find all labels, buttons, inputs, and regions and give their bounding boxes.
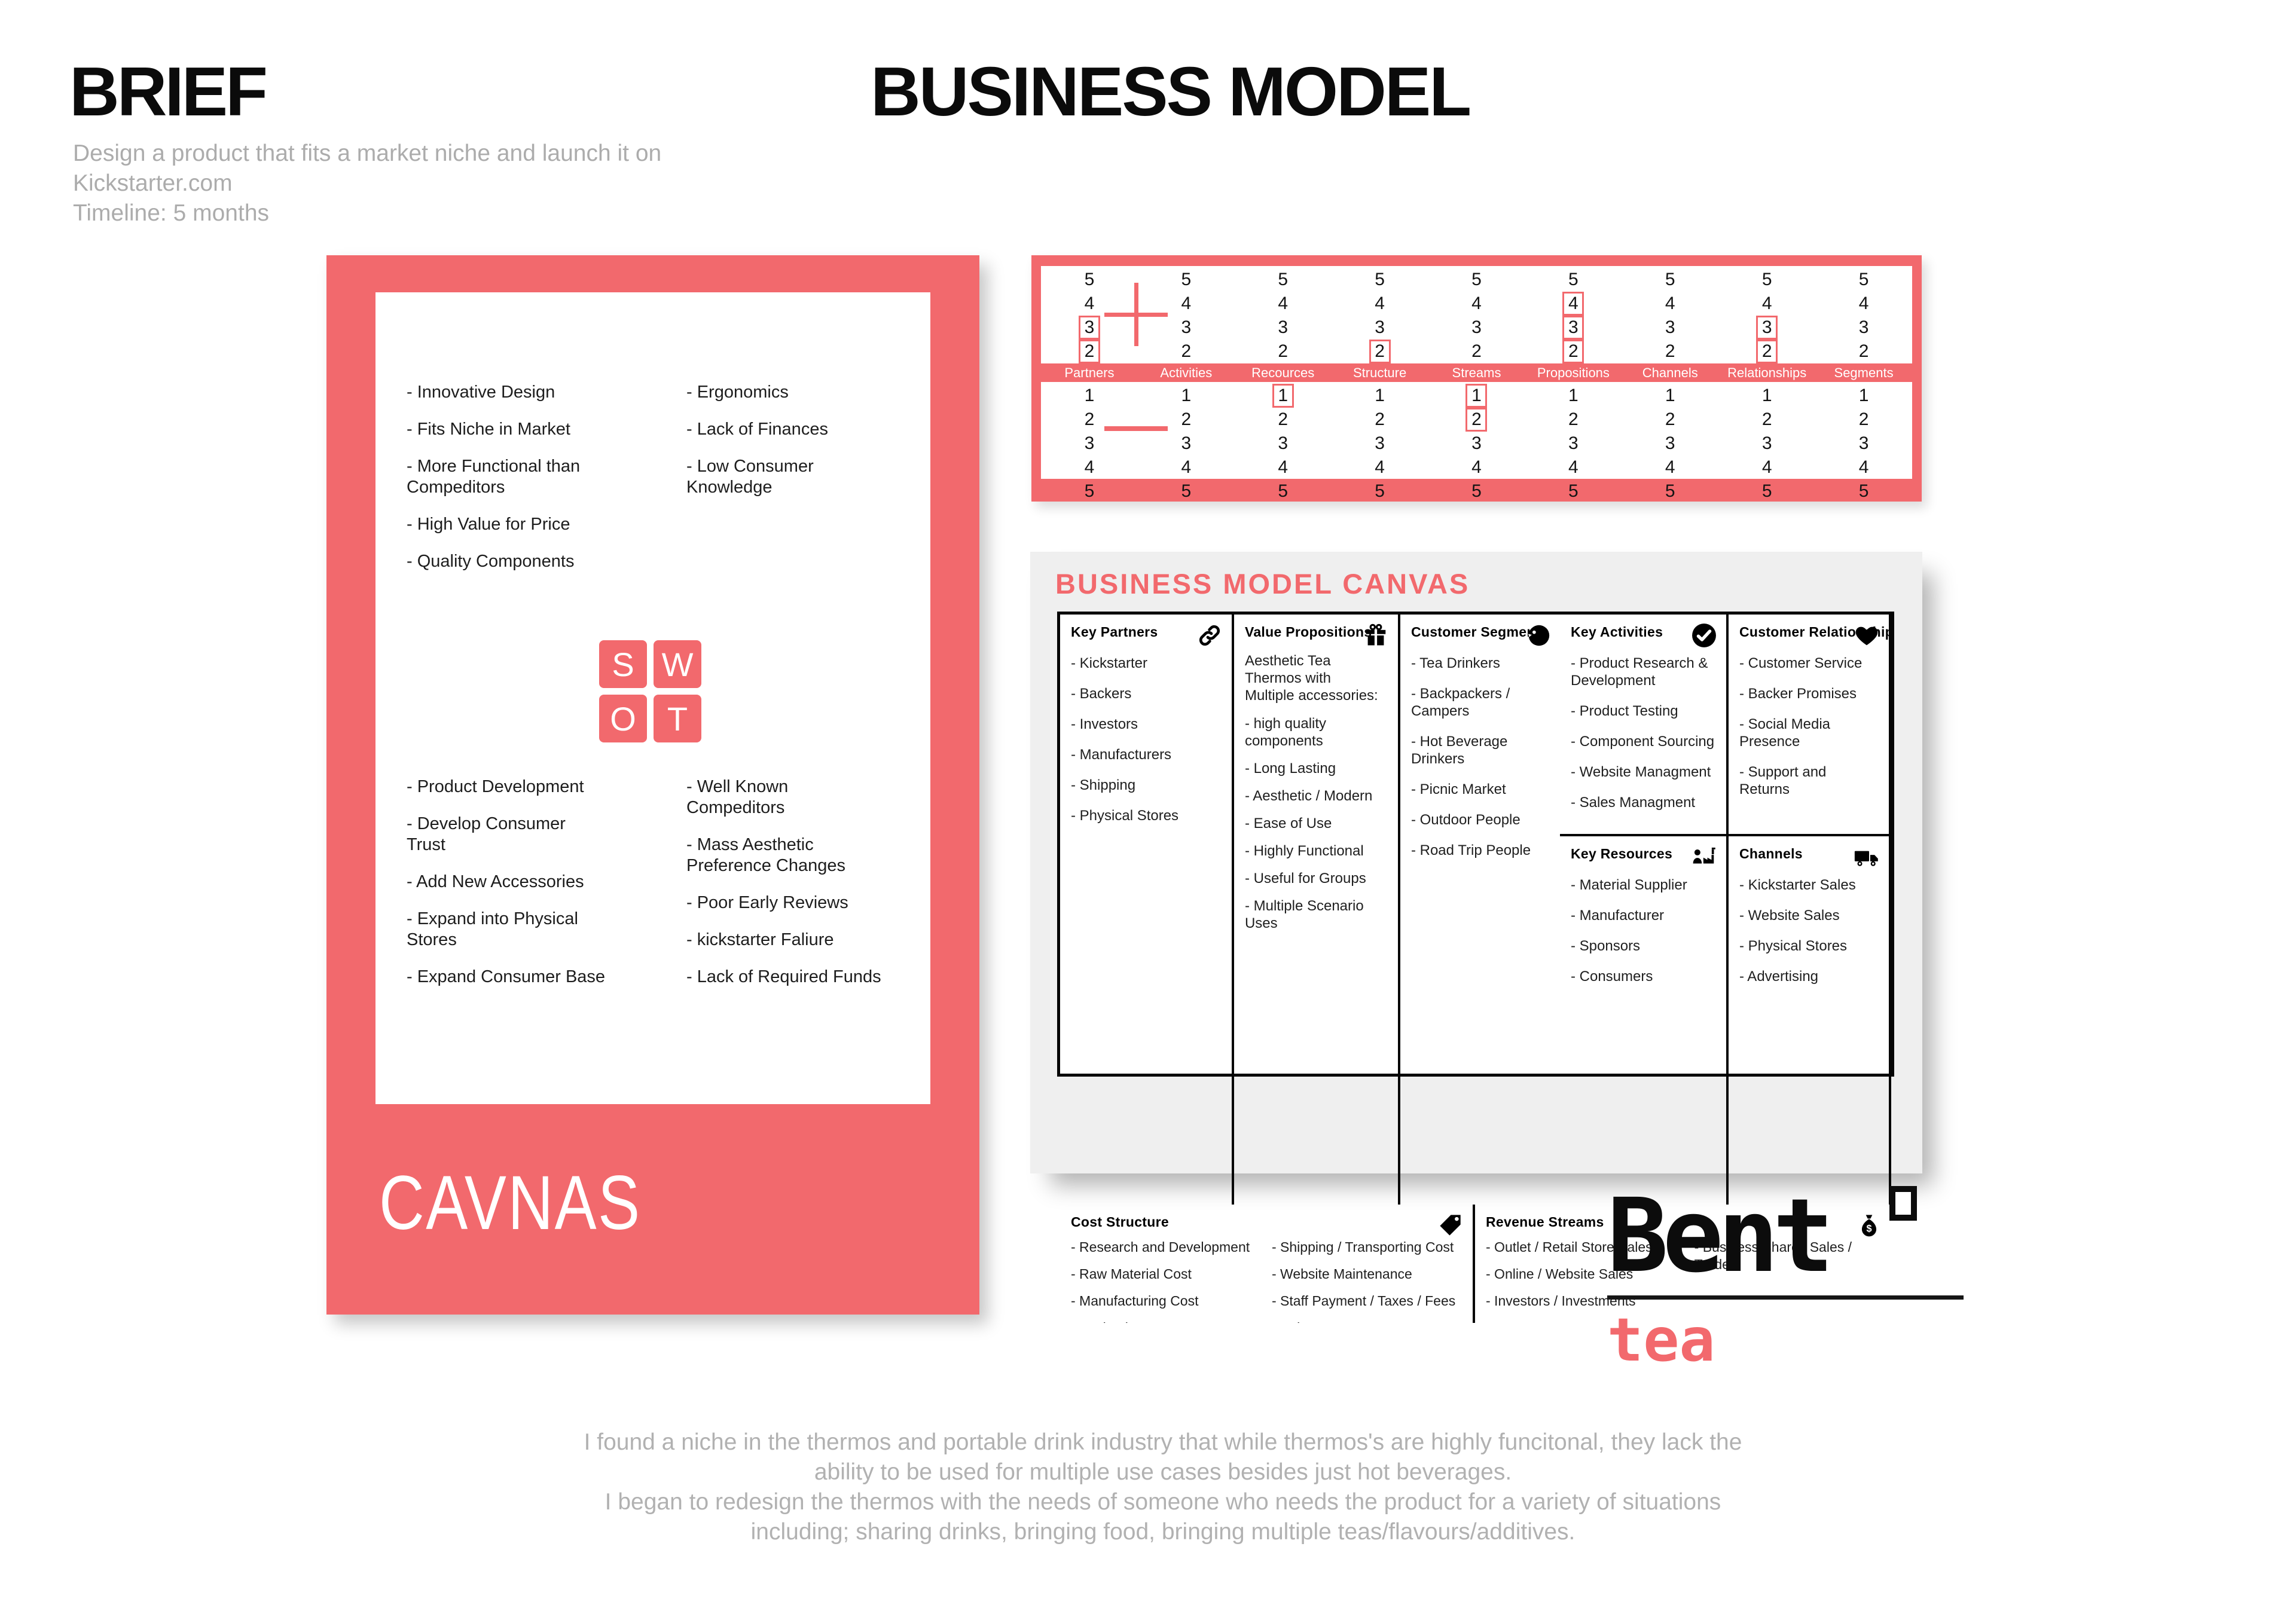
person-factory-icon — [1690, 843, 1718, 871]
rating-value-plus: 4 — [1369, 292, 1391, 316]
list-item: - Material Supplier — [1571, 876, 1715, 894]
rating-value-minus: 4 — [1853, 456, 1874, 479]
list-item: - Expand into Physical Stores — [407, 909, 670, 950]
bmc-cell-key-partners: Key Partners - Kickstarter- Backers- Inv… — [1060, 615, 1234, 1205]
list-item: - Investors — [1071, 716, 1221, 733]
rating-value-plus: 2 — [1079, 340, 1100, 363]
rating-value-plus: 3 — [1659, 316, 1681, 340]
rating-value-minus: 3 — [1659, 432, 1681, 456]
list-item: - Mass Aesthetic Preference Changes — [686, 835, 949, 876]
business-model-title: BUSINESS MODEL — [871, 51, 1470, 132]
list-item: - Kickstarter — [1071, 655, 1221, 672]
rating-column-channels: 54321Channels12345 — [1622, 266, 1718, 479]
swot-icon: S W O T — [599, 640, 701, 742]
bmc-cell-customer-segments: Customer Segments - Tea Drinkers- Backpa… — [1400, 615, 1560, 1205]
bmc-cell-cost-structure: Cost Structure - Research and Developmen… — [1060, 1205, 1475, 1323]
head-icon — [1524, 622, 1552, 649]
rating-column-segments: 54321Segments12345 — [1815, 266, 1912, 479]
swot-card: - Innovative Design- Fits Niche in Marke… — [326, 255, 979, 1315]
page: { "colors":{"coral":"#F2696D","panel":"#… — [0, 0, 2296, 1623]
rating-grid-columns: 54321Partners1234554321Activities1234554… — [1041, 266, 1912, 479]
rating-value-plus: 5 — [1659, 268, 1681, 292]
rating-value-minus: 1 — [1853, 384, 1874, 408]
list-item: - High Value for Price — [407, 514, 670, 535]
list-item: - Fits Niche in Market — [407, 419, 670, 440]
list-item: - Social Media Presence — [1739, 716, 1878, 750]
bmc-value-propositions-intro: Aesthetic Tea Thermos with Multiple acce… — [1245, 652, 1387, 704]
list-item: - Website Maintenance — [1272, 1266, 1455, 1283]
list-item: - Website Sales — [1739, 907, 1878, 924]
list-item: - Multiple Scenario Uses — [1245, 897, 1387, 932]
rating-value-minus: 3 — [1079, 432, 1100, 456]
bmc-cost-structure-col1: - Research and Development- Raw Material… — [1071, 1239, 1250, 1323]
list-item: - Manufacturers — [1071, 746, 1221, 763]
rating-value-minus: 3 — [1176, 432, 1197, 456]
list-item: - Highly Functional — [1245, 842, 1387, 860]
rating-value-minus: 2 — [1272, 408, 1294, 432]
list-item: - Lack of Required Funds — [686, 967, 949, 988]
bmc-value-propositions-items: - high quality components- Long Lasting-… — [1245, 715, 1387, 932]
logo-subtitle: tea — [1607, 1310, 1978, 1370]
rating-value-plus: 3 — [1079, 316, 1100, 340]
rating-value-minus: 1 — [1369, 384, 1391, 408]
rating-value-minus: 2 — [1176, 408, 1197, 432]
rating-value-plus: 4 — [1853, 292, 1874, 316]
rating-value-minus: 4 — [1465, 456, 1487, 479]
list-item: - Advertising — [1739, 968, 1878, 985]
rating-value-plus: 4 — [1465, 292, 1487, 316]
rating-value-plus: 2 — [1465, 340, 1487, 363]
rating-value-plus: 4 — [1659, 292, 1681, 316]
list-item: - Packaging Cost — [1071, 1319, 1250, 1323]
rating-value-minus: 1 — [1272, 384, 1294, 408]
rating-value-plus: 5 — [1369, 268, 1391, 292]
rating-value-minus: 4 — [1369, 456, 1391, 479]
list-item: - Outdoor People — [1411, 811, 1549, 829]
rating-value-plus: 3 — [1176, 316, 1197, 340]
rating-value-minus: 5 — [1465, 479, 1487, 503]
rating-value-plus: 4 — [1272, 292, 1294, 316]
list-item: - Backers — [1071, 685, 1221, 702]
list-item: - Customer Service — [1739, 655, 1878, 672]
list-item: - Hot Beverage Drinkers — [1411, 733, 1549, 768]
list-item: - Component Sourcing — [1571, 733, 1715, 750]
list-item: - kickstarter Faliure — [686, 930, 949, 950]
rating-value-minus: 1 — [1465, 384, 1487, 408]
swot-letter-s: S — [599, 640, 647, 688]
rating-value-minus: 1 — [1756, 384, 1778, 408]
list-item: - Ease of Use — [1245, 815, 1387, 832]
bmc-customer-segments-items: - Tea Drinkers- Backpackers / Campers- H… — [1411, 655, 1549, 859]
rating-value-plus: 2 — [1272, 340, 1294, 363]
list-item: - Quality Components — [407, 551, 670, 572]
rating-value-plus: 2 — [1369, 340, 1391, 363]
list-item: - Consumers — [1571, 968, 1715, 985]
rating-value-minus: 4 — [1756, 456, 1778, 479]
check-circle-icon — [1690, 622, 1718, 649]
swot-card-inner: - Innovative Design- Fits Niche in Marke… — [375, 292, 930, 1104]
list-item: - Develop Consumer Trust — [407, 814, 670, 855]
list-item: - Physical Stores — [1071, 807, 1221, 824]
rating-value-plus: 5 — [1853, 268, 1874, 292]
list-item: - Support and Returns — [1739, 763, 1878, 798]
list-item: - Physical Stores — [1739, 937, 1878, 955]
list-item: - Sales Managment — [1571, 794, 1715, 811]
rating-value-plus: 5 — [1176, 268, 1197, 292]
rating-column-structure: 54321Structure12345 — [1332, 266, 1428, 479]
rating-column-label: Partners — [1041, 363, 1138, 382]
list-item: - Manufacturing Cost — [1071, 1292, 1250, 1310]
list-item: - Ergonomics — [686, 382, 949, 403]
list-item: - Sponsors — [1571, 937, 1715, 955]
bmc-cell-channels: Channels - Kickstarter Sales- Website Sa… — [1729, 836, 1891, 1205]
list-item: - Poor Early Reviews — [686, 893, 949, 913]
rating-value-minus: 4 — [1272, 456, 1294, 479]
rating-value-minus: 4 — [1176, 456, 1197, 479]
rating-value-minus: 2 — [1756, 408, 1778, 432]
swot-letter-o: O — [599, 695, 647, 742]
rating-value-plus: 4 — [1562, 292, 1584, 316]
swot-threats-list: - Well Known Compeditors- Mass Aesthetic… — [686, 777, 949, 1004]
bmc-key-resources-items: - Material Supplier- Manufacturer- Spons… — [1571, 876, 1715, 985]
list-item: - Road Trip People — [1411, 842, 1549, 859]
rating-grid: 54321Partners1234554321Activities1234554… — [1031, 255, 1922, 502]
swot-weaknesses-list: - Ergonomics- Lack of Finances- Low Cons… — [686, 382, 949, 514]
link-icon — [1196, 622, 1223, 649]
degree-mark-icon — [1889, 1186, 1917, 1221]
rating-value-plus: 5 — [1272, 268, 1294, 292]
rating-column-recources: 54321Recources12345 — [1235, 266, 1332, 479]
rating-column-label: Activities — [1138, 363, 1235, 382]
bmc-channels-items: - Kickstarter Sales- Website Sales- Phys… — [1739, 876, 1878, 985]
rating-value-minus: 3 — [1756, 432, 1778, 456]
rating-value-minus: 2 — [1659, 408, 1681, 432]
bmc-customer-relationships-items: - Customer Service- Backer Promises- Soc… — [1739, 655, 1878, 798]
rating-value-minus: 5 — [1853, 479, 1874, 503]
rating-value-plus: 2 — [1659, 340, 1681, 363]
rating-value-minus: 2 — [1465, 408, 1487, 432]
rating-value-minus: 5 — [1369, 479, 1391, 503]
rating-value-minus: 4 — [1562, 456, 1584, 479]
swot-card-label: CAVNAS — [379, 1159, 642, 1247]
plus-icon — [1104, 283, 1168, 346]
rating-column-label: Relationships — [1718, 363, 1815, 382]
rating-value-plus: 5 — [1465, 268, 1487, 292]
list-item: - Product Development — [407, 777, 670, 797]
rating-value-minus: 3 — [1465, 432, 1487, 456]
bmc-table: Key Partners - Kickstarter- Backers- Inv… — [1057, 612, 1894, 1077]
bmc-key-partners-items: - Kickstarter- Backers- Investors- Manuf… — [1071, 655, 1221, 824]
bmc-cell-customer-relationships: Customer Relationships - Customer Servic… — [1729, 615, 1891, 836]
rating-column-propositions: 54321Propositions12345 — [1525, 266, 1622, 479]
business-model-canvas-panel: BUSINESS MODEL CANVAS Key Partners - Kic… — [1030, 552, 1922, 1173]
rating-value-minus: 1 — [1562, 384, 1584, 408]
list-item: - Shipping — [1071, 777, 1221, 794]
rating-value-minus: 3 — [1853, 432, 1874, 456]
truck-icon — [1853, 843, 1880, 871]
rating-value-minus: 5 — [1272, 479, 1294, 503]
rating-column-label: Propositions — [1525, 363, 1622, 382]
list-item: - Manufacturer — [1571, 907, 1715, 924]
swot-opportunities-list: - Product Development- Develop Consumer … — [407, 777, 670, 1004]
rating-value-minus: 2 — [1369, 408, 1391, 432]
rating-value-plus: 4 — [1176, 292, 1197, 316]
list-item: - Useful for Groups — [1245, 870, 1387, 887]
list-item: - Staff Payment / Taxes / Fees — [1272, 1292, 1455, 1310]
list-item: - high quality components — [1245, 715, 1387, 750]
bmc-key-activities-items: - Product Research & Development- Produc… — [1571, 655, 1715, 811]
rating-value-minus: 4 — [1659, 456, 1681, 479]
list-item: - Backpackers / Campers — [1411, 685, 1549, 720]
rating-column-streams: 54321Streams12345 — [1428, 266, 1525, 479]
heart-icon — [1853, 622, 1880, 649]
swot-letter-w: W — [654, 640, 701, 688]
logo-divider — [1607, 1295, 1964, 1300]
rating-value-plus: 3 — [1465, 316, 1487, 340]
footer-paragraph: I found a niche in the thermos and porta… — [538, 1428, 1788, 1547]
rating-column-label: Channels — [1622, 363, 1718, 382]
rating-value-minus: 1 — [1079, 384, 1100, 408]
rating-value-minus: 2 — [1079, 408, 1100, 432]
bmc-title: BUSINESS MODEL CANVAS — [1055, 567, 1470, 600]
list-item: - Expand Consumer Base — [407, 967, 670, 988]
rating-column-label: Recources — [1235, 363, 1332, 382]
rating-value-minus: 2 — [1562, 408, 1584, 432]
rating-column-relationships: 54321Relationships12345 — [1718, 266, 1815, 479]
list-item: - More Functional than Compeditors — [407, 456, 670, 498]
rating-column-label: Structure — [1332, 363, 1428, 382]
bent-tea-logo: Bent tea — [1607, 1185, 1978, 1370]
list-item: - Well Known Compeditors — [686, 777, 949, 818]
rating-value-plus: 4 — [1079, 292, 1100, 316]
rating-value-plus: 2 — [1176, 340, 1197, 363]
list-item: - Shipping / Transporting Cost — [1272, 1239, 1455, 1256]
list-item: - Website Managment — [1571, 763, 1715, 781]
list-item: - Add New Accessories — [407, 872, 670, 893]
bmc-cost-structure-title: Cost Structure — [1071, 1214, 1462, 1230]
list-item: - Backer Promises — [1739, 685, 1878, 702]
rating-value-plus: 2 — [1853, 340, 1874, 363]
list-item: - Aesthetic / Modern — [1245, 787, 1387, 805]
rating-value-plus: 3 — [1756, 316, 1778, 340]
rating-column-label: Streams — [1428, 363, 1525, 382]
list-item: - Research and Development — [1071, 1239, 1250, 1256]
rating-value-minus: 3 — [1272, 432, 1294, 456]
rating-value-minus: 2 — [1853, 408, 1874, 432]
bmc-cost-structure-col2: - Shipping / Transporting Cost- Website … — [1272, 1239, 1455, 1323]
rating-value-minus: 5 — [1079, 479, 1100, 503]
rating-value-minus: 5 — [1176, 479, 1197, 503]
rating-value-plus: 3 — [1562, 316, 1584, 340]
list-item: - Picnic Market — [1411, 781, 1549, 798]
rating-value-plus: 3 — [1272, 316, 1294, 340]
list-item: - Tea Drinkers — [1411, 655, 1549, 672]
rating-value-minus: 3 — [1369, 432, 1391, 456]
list-item: - Low Consumer Knowledge — [686, 456, 949, 498]
rating-value-plus: 3 — [1853, 316, 1874, 340]
swot-letter-t: T — [654, 695, 701, 742]
swot-strengths-list: - Innovative Design- Fits Niche in Marke… — [407, 382, 670, 588]
rating-value-minus: 4 — [1079, 456, 1100, 479]
rating-value-plus: 5 — [1756, 268, 1778, 292]
list-item: - Lack of Finances — [686, 419, 949, 440]
rating-value-minus: 1 — [1176, 384, 1197, 408]
list-item: - Long Lasting — [1245, 760, 1387, 777]
gift-icon — [1362, 622, 1390, 649]
rating-value-plus: 4 — [1756, 292, 1778, 316]
rating-value-minus: 5 — [1756, 479, 1778, 503]
list-item: - Product Research & Development — [1571, 655, 1715, 689]
minus-icon — [1104, 426, 1168, 431]
bmc-cell-key-activities: Key Activities - Product Research & Deve… — [1560, 615, 1729, 836]
brief-description: Design a product that fits a market nich… — [73, 139, 661, 228]
rating-value-plus: 5 — [1562, 268, 1584, 292]
list-item: - Product Testing — [1571, 702, 1715, 720]
rating-value-plus: 5 — [1079, 268, 1100, 292]
rating-value-plus: 2 — [1756, 340, 1778, 363]
tag-icon — [1437, 1212, 1464, 1239]
rating-value-plus: 3 — [1369, 316, 1391, 340]
bmc-cell-key-resources: Key Resources - Material Supplier- Manuf… — [1560, 836, 1729, 1205]
rating-value-minus: 5 — [1562, 479, 1584, 503]
rating-value-minus: 5 — [1659, 479, 1681, 503]
logo-wordmark: Bent — [1607, 1185, 1978, 1288]
rating-value-minus: 1 — [1659, 384, 1681, 408]
list-item: - Raw Material Cost — [1071, 1266, 1250, 1283]
list-item: - Sales — [1272, 1319, 1455, 1323]
list-item: - Kickstarter Sales — [1739, 876, 1878, 894]
bmc-cell-value-propositions: Value Propositions Aesthetic Tea Thermos… — [1234, 615, 1400, 1205]
rating-column-label: Segments — [1815, 363, 1912, 382]
rating-value-plus: 2 — [1562, 340, 1584, 363]
rating-value-minus: 3 — [1562, 432, 1584, 456]
brief-title: BRIEF — [69, 51, 265, 132]
list-item: - Innovative Design — [407, 382, 670, 403]
